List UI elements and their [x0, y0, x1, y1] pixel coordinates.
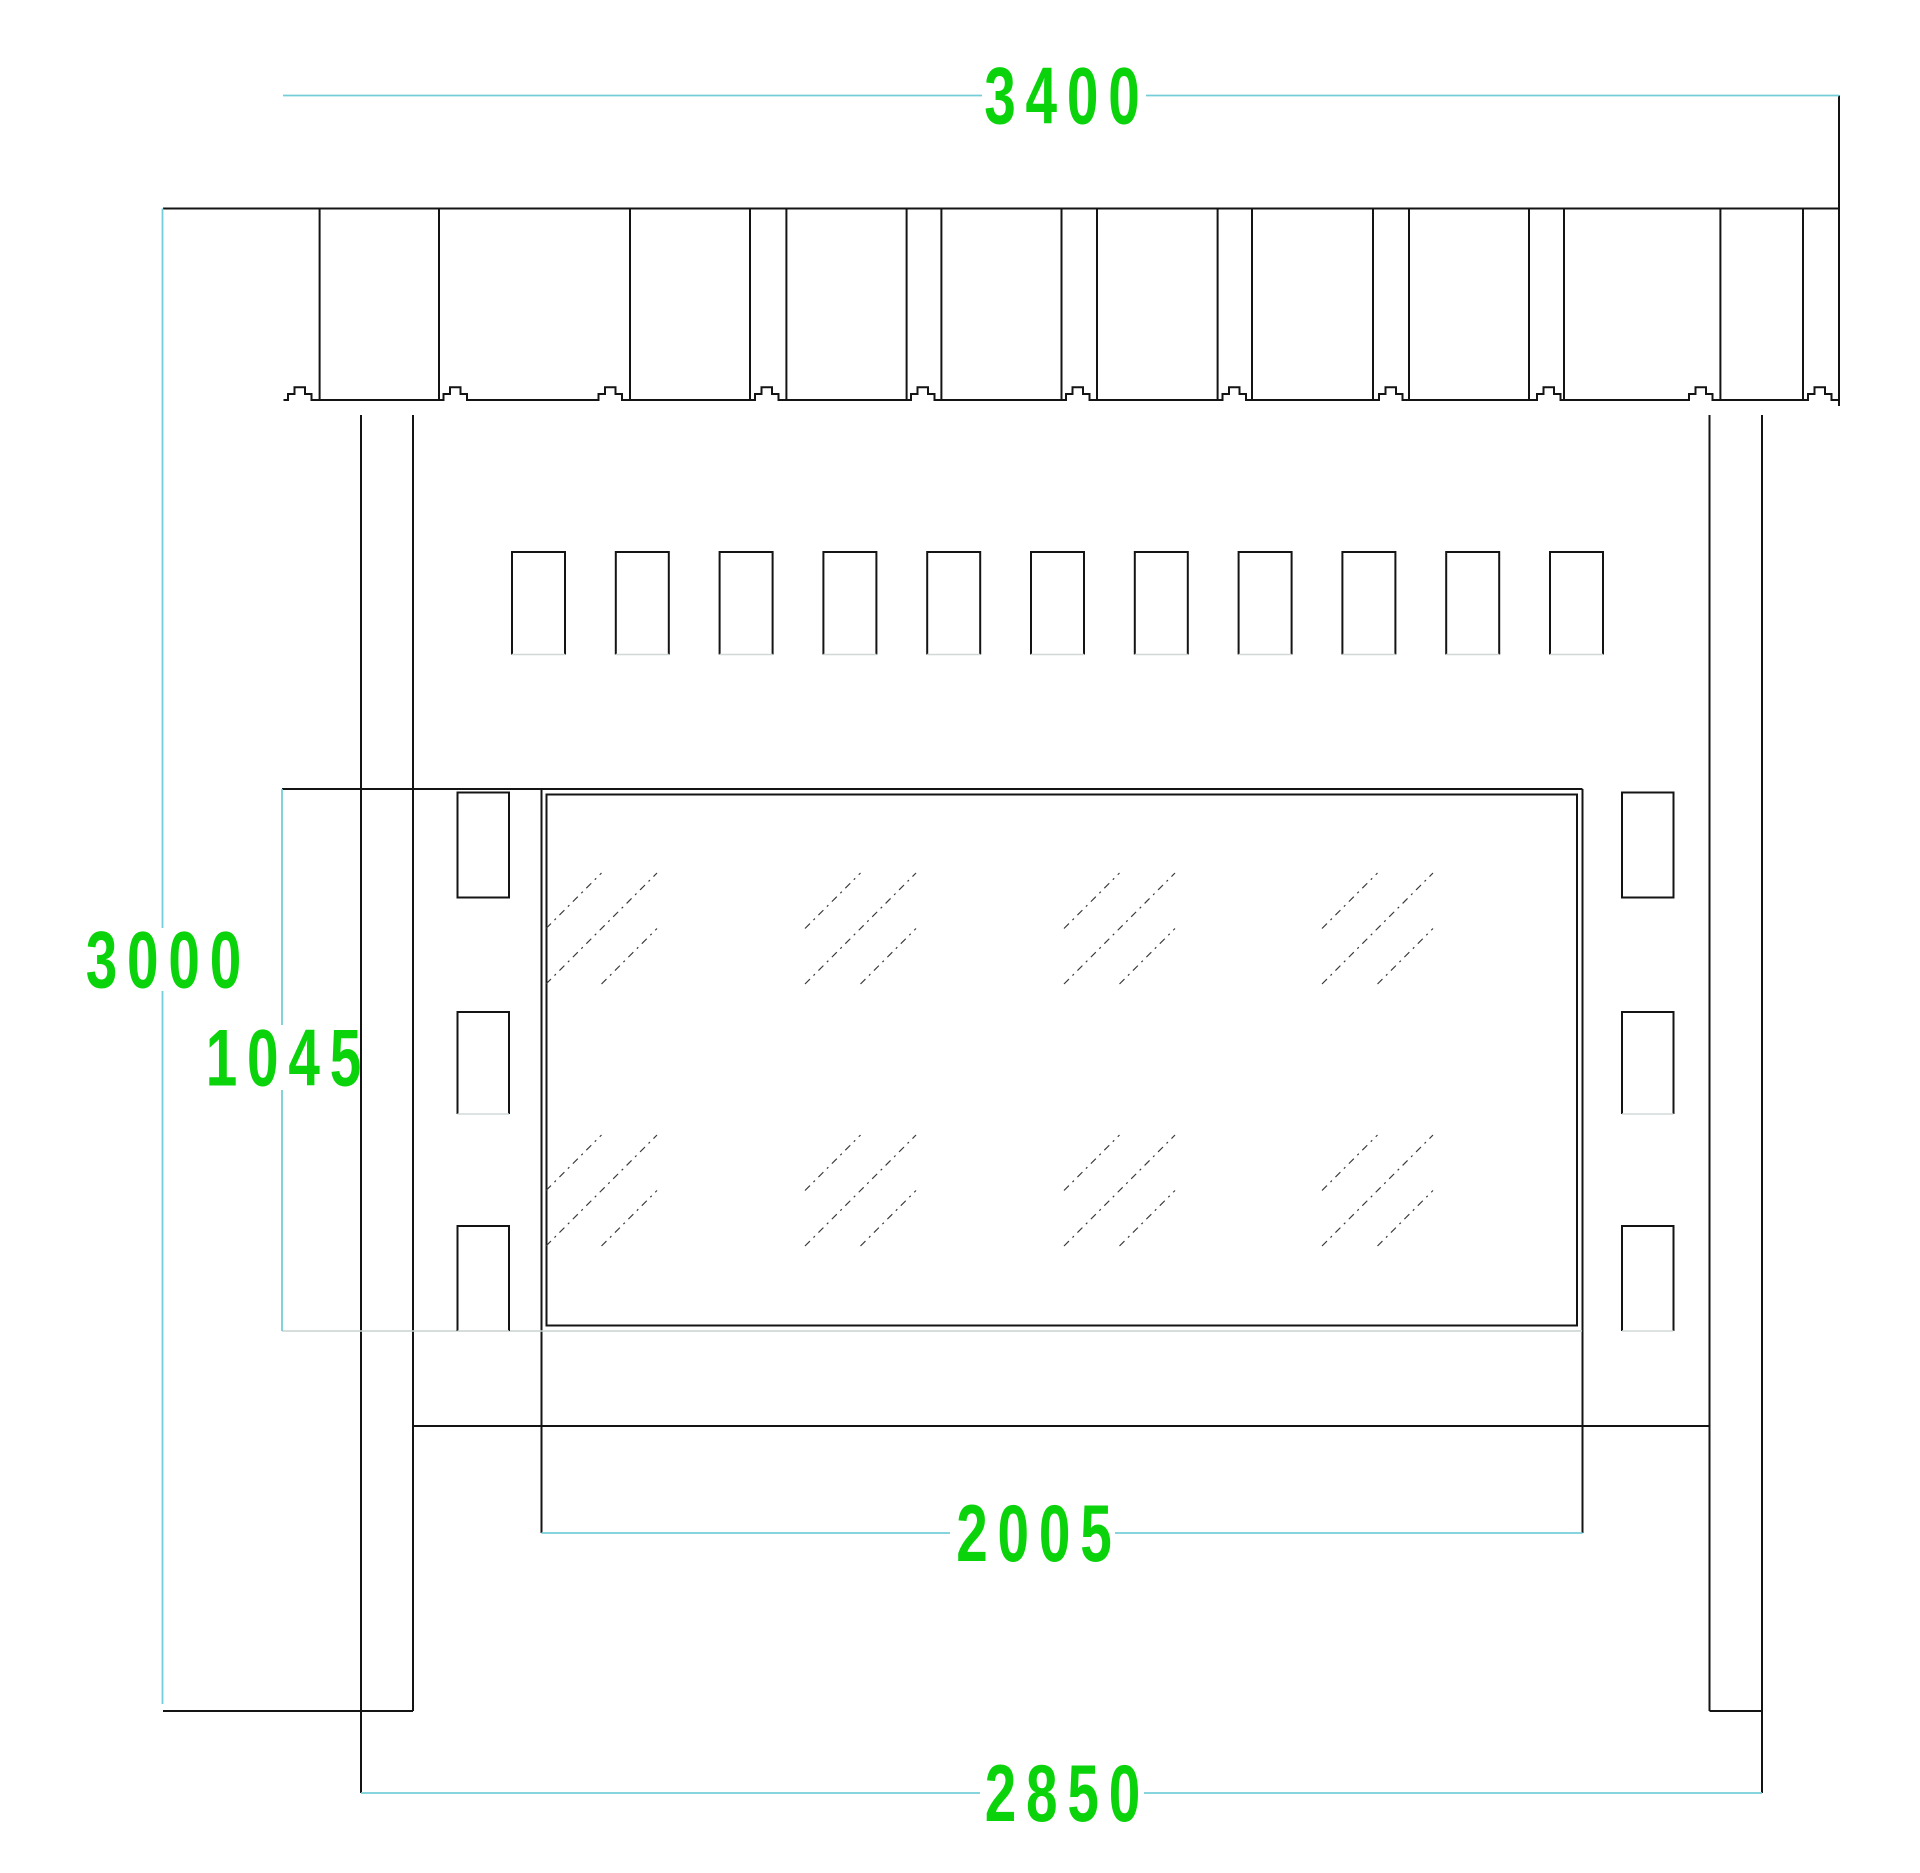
- svg-text:3000: 3000: [86, 915, 251, 1005]
- svg-text:2850: 2850: [985, 1748, 1150, 1838]
- svg-text:1045: 1045: [206, 1013, 371, 1103]
- svg-text:2005: 2005: [956, 1488, 1121, 1578]
- svg-text:3400: 3400: [984, 51, 1149, 141]
